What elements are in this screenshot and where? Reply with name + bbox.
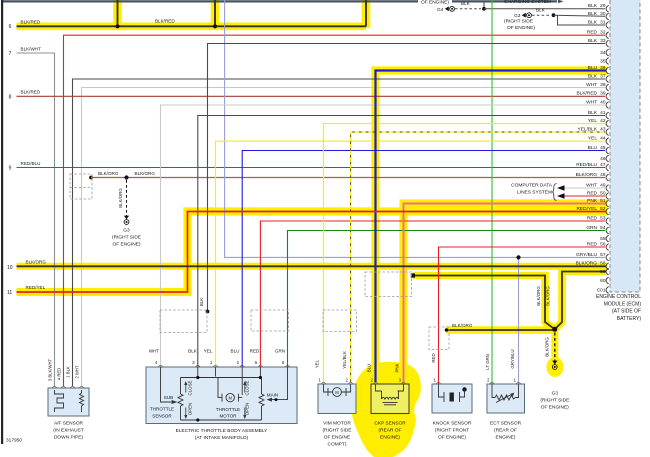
svg-text:GRN: GRN bbox=[586, 225, 597, 231]
svg-text:51: 51 bbox=[600, 198, 606, 204]
svg-text:36: 36 bbox=[600, 65, 606, 71]
svg-text:31: 31 bbox=[600, 19, 606, 25]
svg-text:BLK: BLK bbox=[588, 110, 598, 116]
svg-text:(AT SIDE OF: (AT SIDE OF bbox=[612, 309, 641, 315]
svg-text:ECT SENSOR: ECT SENSOR bbox=[490, 421, 522, 427]
svg-text:3 BLK/WHT: 3 BLK/WHT bbox=[48, 359, 53, 382]
svg-text:BLK/ORG: BLK/ORG bbox=[576, 261, 598, 267]
svg-text:BLK/WHT: BLK/WHT bbox=[21, 46, 42, 51]
svg-text:52: 52 bbox=[600, 206, 606, 212]
svg-text:50: 50 bbox=[600, 190, 606, 196]
svg-text:BLK/ORG: BLK/ORG bbox=[576, 172, 598, 178]
svg-text:BATTERY): BATTERY) bbox=[617, 316, 642, 322]
svg-text:MAIN: MAIN bbox=[267, 392, 278, 397]
svg-text:THROTTLE: THROTTLE bbox=[216, 407, 240, 412]
svg-text:RED/YEL: RED/YEL bbox=[26, 285, 46, 290]
svg-text:42: 42 bbox=[600, 118, 606, 124]
svg-text:34: 34 bbox=[600, 50, 606, 56]
svg-text:BLK/ORG: BLK/ORG bbox=[98, 171, 119, 176]
svg-text:48: 48 bbox=[600, 172, 606, 178]
svg-text:35: 35 bbox=[600, 59, 606, 65]
svg-text:BLK/RED: BLK/RED bbox=[21, 90, 41, 95]
svg-text:4 RED: 4 RED bbox=[57, 368, 62, 380]
svg-text:(RIGHT FRONT: (RIGHT FRONT bbox=[435, 428, 469, 434]
svg-text:CLOSE: CLOSE bbox=[188, 380, 193, 395]
svg-text:45: 45 bbox=[600, 145, 606, 151]
svg-text:BLK: BLK bbox=[588, 19, 598, 25]
svg-text:BLK/RED: BLK/RED bbox=[21, 20, 41, 25]
svg-text:CKP SENSOR: CKP SENSOR bbox=[374, 421, 406, 427]
svg-text:BLK/ORG: BLK/ORG bbox=[26, 259, 47, 264]
svg-text:SUB: SUB bbox=[164, 395, 173, 400]
svg-text:38: 38 bbox=[600, 82, 606, 88]
svg-text:ELECTRIC THROTTLE BODY ASSEMBL: ELECTRIC THROTTLE BODY ASSEMBLY bbox=[176, 428, 268, 434]
svg-text:MODULE (ECM): MODULE (ECM) bbox=[604, 301, 642, 307]
svg-text:BLK/ORG: BLK/ORG bbox=[536, 286, 541, 306]
svg-text:BLK: BLK bbox=[199, 298, 204, 306]
svg-text:(RIGHT SIDE: (RIGHT SIDE bbox=[540, 398, 569, 404]
svg-text:BLU: BLU bbox=[588, 145, 598, 151]
svg-text:RED: RED bbox=[431, 353, 436, 362]
svg-text:LT GRN: LT GRN bbox=[485, 354, 490, 370]
svg-text:YEL: YEL bbox=[315, 359, 320, 368]
svg-text:33: 33 bbox=[600, 38, 606, 44]
svg-text:6: 6 bbox=[9, 24, 12, 30]
svg-text:60: 60 bbox=[600, 278, 606, 284]
svg-text:YEL: YEL bbox=[588, 118, 597, 124]
svg-text:10: 10 bbox=[7, 265, 13, 271]
svg-text:LINES SYSTEM: LINES SYSTEM bbox=[517, 190, 552, 196]
svg-text:41: 41 bbox=[600, 110, 606, 116]
svg-text:YEL/BLK: YEL/BLK bbox=[342, 351, 347, 369]
svg-text:RED: RED bbox=[587, 190, 598, 196]
svg-text:YEL: YEL bbox=[588, 136, 597, 142]
svg-text:(REAR OF: (REAR OF bbox=[379, 428, 402, 434]
svg-text:39: 39 bbox=[600, 91, 606, 97]
svg-text:M: M bbox=[228, 396, 232, 401]
svg-text:49: 49 bbox=[600, 182, 606, 188]
svg-text:GRN: GRN bbox=[275, 349, 285, 354]
svg-text:(RIGHT SIDE: (RIGHT SIDE bbox=[504, 19, 533, 25]
svg-text:YEL/BLK: YEL/BLK bbox=[578, 126, 598, 132]
svg-text:OF ENGINE): OF ENGINE) bbox=[421, 0, 449, 5]
svg-text:ENGINE): ENGINE) bbox=[380, 435, 400, 441]
svg-text:WHT: WHT bbox=[149, 349, 160, 354]
svg-text:317950: 317950 bbox=[6, 438, 22, 444]
svg-text:1 BLK: 1 BLK bbox=[66, 366, 71, 378]
svg-text:OF ENGINE: OF ENGINE bbox=[324, 435, 350, 441]
svg-text:47: 47 bbox=[600, 162, 606, 168]
svg-text:30: 30 bbox=[600, 11, 606, 17]
svg-text:44: 44 bbox=[600, 136, 606, 142]
svg-text:BLU: BLU bbox=[588, 65, 598, 71]
svg-text:53: 53 bbox=[600, 215, 606, 221]
svg-text:BLK/RED: BLK/RED bbox=[155, 19, 175, 24]
svg-text:RED/YEL: RED/YEL bbox=[576, 206, 597, 212]
svg-text:OF ENGINE): OF ENGINE) bbox=[113, 242, 141, 248]
svg-text:RED: RED bbox=[250, 349, 260, 354]
svg-text:(REAR OF: (REAR OF bbox=[494, 428, 517, 434]
svg-text:BLK/ORG: BLK/ORG bbox=[118, 188, 123, 208]
svg-text:8: 8 bbox=[9, 94, 12, 100]
svg-text:54: 54 bbox=[600, 225, 606, 231]
svg-text:A/F SENSOR: A/F SENSOR bbox=[54, 421, 84, 427]
svg-text:BLK/ORG: BLK/ORG bbox=[546, 286, 551, 306]
svg-text:56: 56 bbox=[600, 241, 606, 247]
svg-text:BLK: BLK bbox=[461, 1, 471, 6]
svg-text:2 WHT: 2 WHT bbox=[75, 365, 80, 378]
svg-text:BLK: BLK bbox=[588, 11, 598, 17]
svg-text:G3: G3 bbox=[552, 391, 559, 397]
svg-text:57: 57 bbox=[600, 252, 606, 258]
svg-text:29: 29 bbox=[600, 3, 606, 9]
svg-text:G4: G4 bbox=[437, 7, 444, 13]
svg-text:PNK: PNK bbox=[587, 198, 598, 204]
svg-text:WHT: WHT bbox=[586, 82, 597, 88]
svg-text:SENSOR: SENSOR bbox=[152, 414, 172, 419]
svg-text:BLK: BLK bbox=[536, 8, 546, 13]
svg-text:RED/BLU: RED/BLU bbox=[576, 162, 597, 168]
svg-text:RED/BLU: RED/BLU bbox=[21, 161, 41, 166]
svg-text:KNOCK SENSOR: KNOCK SENSOR bbox=[433, 421, 472, 427]
svg-text:PNK: PNK bbox=[395, 363, 400, 372]
svg-text:OPEN: OPEN bbox=[188, 403, 193, 415]
svg-text:43: 43 bbox=[600, 126, 606, 132]
svg-text:OF ENGINE): OF ENGINE) bbox=[541, 405, 569, 411]
svg-text:GRY/BLU: GRY/BLU bbox=[510, 349, 515, 368]
svg-text:BLK: BLK bbox=[188, 349, 198, 354]
svg-text:32: 32 bbox=[600, 30, 606, 36]
svg-text:BLK: BLK bbox=[588, 3, 598, 9]
svg-text:BLU: BLU bbox=[231, 349, 240, 354]
svg-text:WHT: WHT bbox=[586, 99, 597, 105]
svg-text:(AT INTAKE MANIFOLD): (AT INTAKE MANIFOLD) bbox=[195, 435, 249, 441]
svg-text:ENGINE CONTROL: ENGINE CONTROL bbox=[596, 294, 641, 300]
svg-text:BLK/ORG: BLK/ORG bbox=[135, 171, 156, 176]
svg-text:59: 59 bbox=[600, 269, 606, 275]
svg-text:58: 58 bbox=[600, 261, 606, 267]
svg-text:(RIGHT SIDE: (RIGHT SIDE bbox=[112, 235, 141, 241]
svg-text:RED: RED bbox=[587, 215, 598, 221]
svg-text:40: 40 bbox=[600, 99, 606, 105]
svg-text:GRY/BLU: GRY/BLU bbox=[576, 252, 598, 258]
svg-text:COMPT): COMPT) bbox=[328, 442, 347, 448]
svg-text:ENGINE): ENGINE) bbox=[496, 435, 516, 441]
svg-text:11: 11 bbox=[7, 290, 12, 296]
svg-text:BLK/ORG: BLK/ORG bbox=[545, 337, 550, 357]
svg-text:G3: G3 bbox=[514, 13, 521, 19]
svg-text:COMPUTER DATA: COMPUTER DATA bbox=[511, 182, 553, 188]
svg-text:BLK: BLK bbox=[588, 73, 598, 79]
svg-text:YEL: YEL bbox=[204, 349, 213, 354]
svg-text:7: 7 bbox=[9, 51, 12, 57]
svg-text:DOWN PIPE): DOWN PIPE) bbox=[54, 435, 83, 441]
svg-text:M: M bbox=[335, 390, 339, 395]
svg-text:C01: C01 bbox=[597, 288, 606, 294]
svg-text:RED: RED bbox=[587, 30, 598, 36]
svg-text:37: 37 bbox=[600, 73, 606, 79]
svg-text:BLU: BLU bbox=[367, 364, 372, 373]
svg-text:CHARGING SYSTEM: CHARGING SYSTEM bbox=[504, 0, 551, 5]
svg-text:MOTOR: MOTOR bbox=[219, 413, 237, 418]
svg-text:BLK: BLK bbox=[588, 38, 598, 44]
svg-text:9: 9 bbox=[9, 166, 12, 172]
svg-text:BLK/RED: BLK/RED bbox=[576, 91, 597, 97]
svg-text:WHT: WHT bbox=[586, 182, 597, 188]
svg-text:VIM MOTOR: VIM MOTOR bbox=[323, 421, 351, 427]
svg-text:46: 46 bbox=[600, 156, 606, 162]
svg-text:OF ENGINE): OF ENGINE) bbox=[438, 435, 466, 441]
svg-text:BLK/ORG: BLK/ORG bbox=[452, 323, 473, 328]
svg-text:(IN EXHAUST: (IN EXHAUST bbox=[53, 428, 83, 434]
svg-text:(RIGHT SIDE: (RIGHT SIDE bbox=[323, 428, 352, 434]
svg-text:RED: RED bbox=[587, 241, 598, 247]
svg-text:55: 55 bbox=[600, 236, 606, 242]
svg-text:OF ENGINE): OF ENGINE) bbox=[507, 25, 535, 31]
svg-text:THROTTLE: THROTTLE bbox=[150, 407, 174, 412]
svg-text:G3: G3 bbox=[123, 228, 130, 234]
